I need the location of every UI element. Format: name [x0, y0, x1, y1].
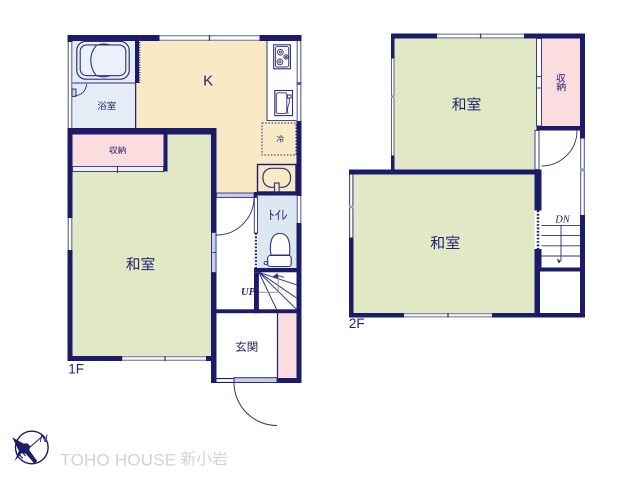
- svg-text:DN: DN: [554, 215, 571, 226]
- svg-text:2F: 2F: [349, 316, 365, 331]
- svg-text:N: N: [40, 433, 48, 445]
- svg-text:UP: UP: [241, 287, 256, 298]
- svg-text:TOHO HOUSE: TOHO HOUSE: [60, 451, 176, 470]
- svg-text:K: K: [203, 73, 213, 90]
- svg-text:1F: 1F: [68, 361, 84, 376]
